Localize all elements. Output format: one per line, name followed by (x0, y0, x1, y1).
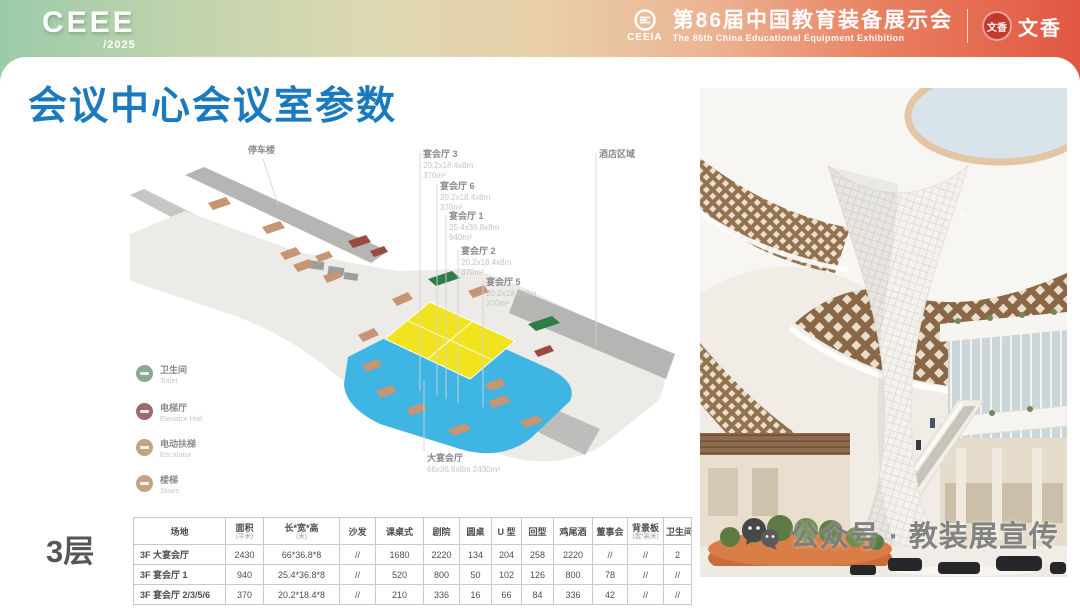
col-area: 面积(平米) (226, 518, 264, 545)
atrium-photo-svg (700, 88, 1067, 577)
banner-right-group: CEEIA 第86届中国教育装备展示会 The 86th China Educa… (627, 9, 1062, 43)
col-u-shape: U 型 (492, 518, 522, 545)
col-hollow-square: 回型 (522, 518, 554, 545)
wenxiang-seal-text: 文香 (987, 19, 1007, 34)
label-room-1: 宴会厅 1 25.4x36.8x8m 940m² (449, 211, 499, 243)
label-parking-text: 停车楼 (248, 145, 275, 157)
page-title: 会议中心会议室参数 (28, 75, 397, 131)
atrium-photo: 公众号 · 教装展宣传 (700, 88, 1067, 577)
wood-ceiling (700, 433, 850, 455)
floor-plan-diagram: 停车楼 宴会厅 3 20.2x18.4x8m 370m² 宴会厅 6 20.2x… (130, 139, 695, 511)
exhibition-title: 第86届中国教育装备展示会 The 86th China Educational… (673, 9, 953, 43)
col-toilet: 卫生间 (664, 518, 692, 545)
label-room-2: 宴会厅 2 20.2x18.4x8m 370m² (461, 246, 511, 278)
ceeia-logo-icon (634, 9, 656, 31)
col-boardroom: 董事会 (593, 518, 628, 545)
label-hotel-area: 酒店区域 (599, 149, 635, 161)
floor-label: 3层 (46, 526, 94, 571)
label-room-6: 宴会厅 6 20.2x18.4x8m 370m² (440, 181, 490, 213)
wechat-icon (740, 517, 780, 551)
banner-divider (967, 9, 968, 43)
elevator-icon (136, 403, 153, 420)
watermark: 公众号 · 教装展宣传 (740, 513, 1059, 555)
floor-plan-svg (130, 139, 695, 511)
toilet-icon (136, 365, 153, 382)
exhibition-title-cn: 第86届中国教育装备展示会 (673, 9, 953, 33)
exhibition-title-en: The 86th China Educational Equipment Exh… (673, 33, 953, 43)
room-parameters-table: 场地 面积(平米) 长*宽*高(米) 沙发 课桌式 剧院 圆桌 U 型 回型 鸡… (133, 517, 692, 605)
col-dimensions: 长*宽*高(米) (264, 518, 340, 545)
table-row: 3F 宴会厅 1 940 25.4*36.8*8 // 520 800 50 1… (134, 565, 692, 585)
col-venue: 场地 (134, 518, 226, 545)
ceeia-abbr: CEEIA (627, 32, 663, 43)
col-round-table: 圆桌 (460, 518, 492, 545)
col-sofa: 沙发 (340, 518, 376, 545)
ceee-logo-text: CEEE (42, 8, 136, 38)
stairs-icon (136, 475, 153, 492)
ceee-logo: CEEE /2025 (42, 8, 136, 51)
ceee-logo-year: /2025 (42, 40, 136, 51)
watermark-text: 公众号 · 教装展宣传 (790, 513, 1059, 555)
legend-stairs: 楼梯 Stairs (136, 475, 179, 495)
wenxiang-name: 文香 (1018, 12, 1062, 41)
legend-toilet: 卫生间 Toilet (136, 365, 187, 385)
label-grand-hall: 大宴会厅 66x36.8x8m 2430m² (427, 453, 500, 475)
label-room-5: 宴会厅 5 20.2x18.4x8m 370m² (486, 277, 536, 309)
col-cocktail: 鸡尾酒 (554, 518, 593, 545)
slide-body: 会议中心会议室参数 (0, 57, 1080, 608)
table-row: 3F 大宴会厅 2430 66*36.8*8 // 1680 2220 134 … (134, 545, 692, 565)
legend-escalator: 电动扶梯 Escalator (136, 439, 196, 459)
ceeia-logo: CEEIA (627, 9, 663, 43)
legend-elevator: 电梯厅 Elevator Hall (136, 403, 203, 423)
presentation-slide: CEEE /2025 CEEIA 第86届中国教育装备展示会 The 86th … (0, 0, 1080, 608)
label-room-3: 宴会厅 3 20.2x18.4x8m 370m² (423, 149, 473, 181)
col-classroom: 课桌式 (376, 518, 424, 545)
escalator-icon (136, 439, 153, 456)
table-header-row: 场地 面积(平米) 长*宽*高(米) 沙发 课桌式 剧院 圆桌 U 型 回型 鸡… (134, 518, 692, 545)
label-parking: 停车楼 (248, 145, 275, 157)
col-backdrop: 背景板(宽*高米) (628, 518, 664, 545)
col-theatre: 剧院 (424, 518, 460, 545)
wenxiang-logo: 文香 文香 (982, 11, 1062, 41)
table-row: 3F 宴会厅 2/3/5/6 370 20.2*18.4*8 // 210 33… (134, 585, 692, 605)
wenxiang-seal-icon: 文香 (982, 11, 1012, 41)
